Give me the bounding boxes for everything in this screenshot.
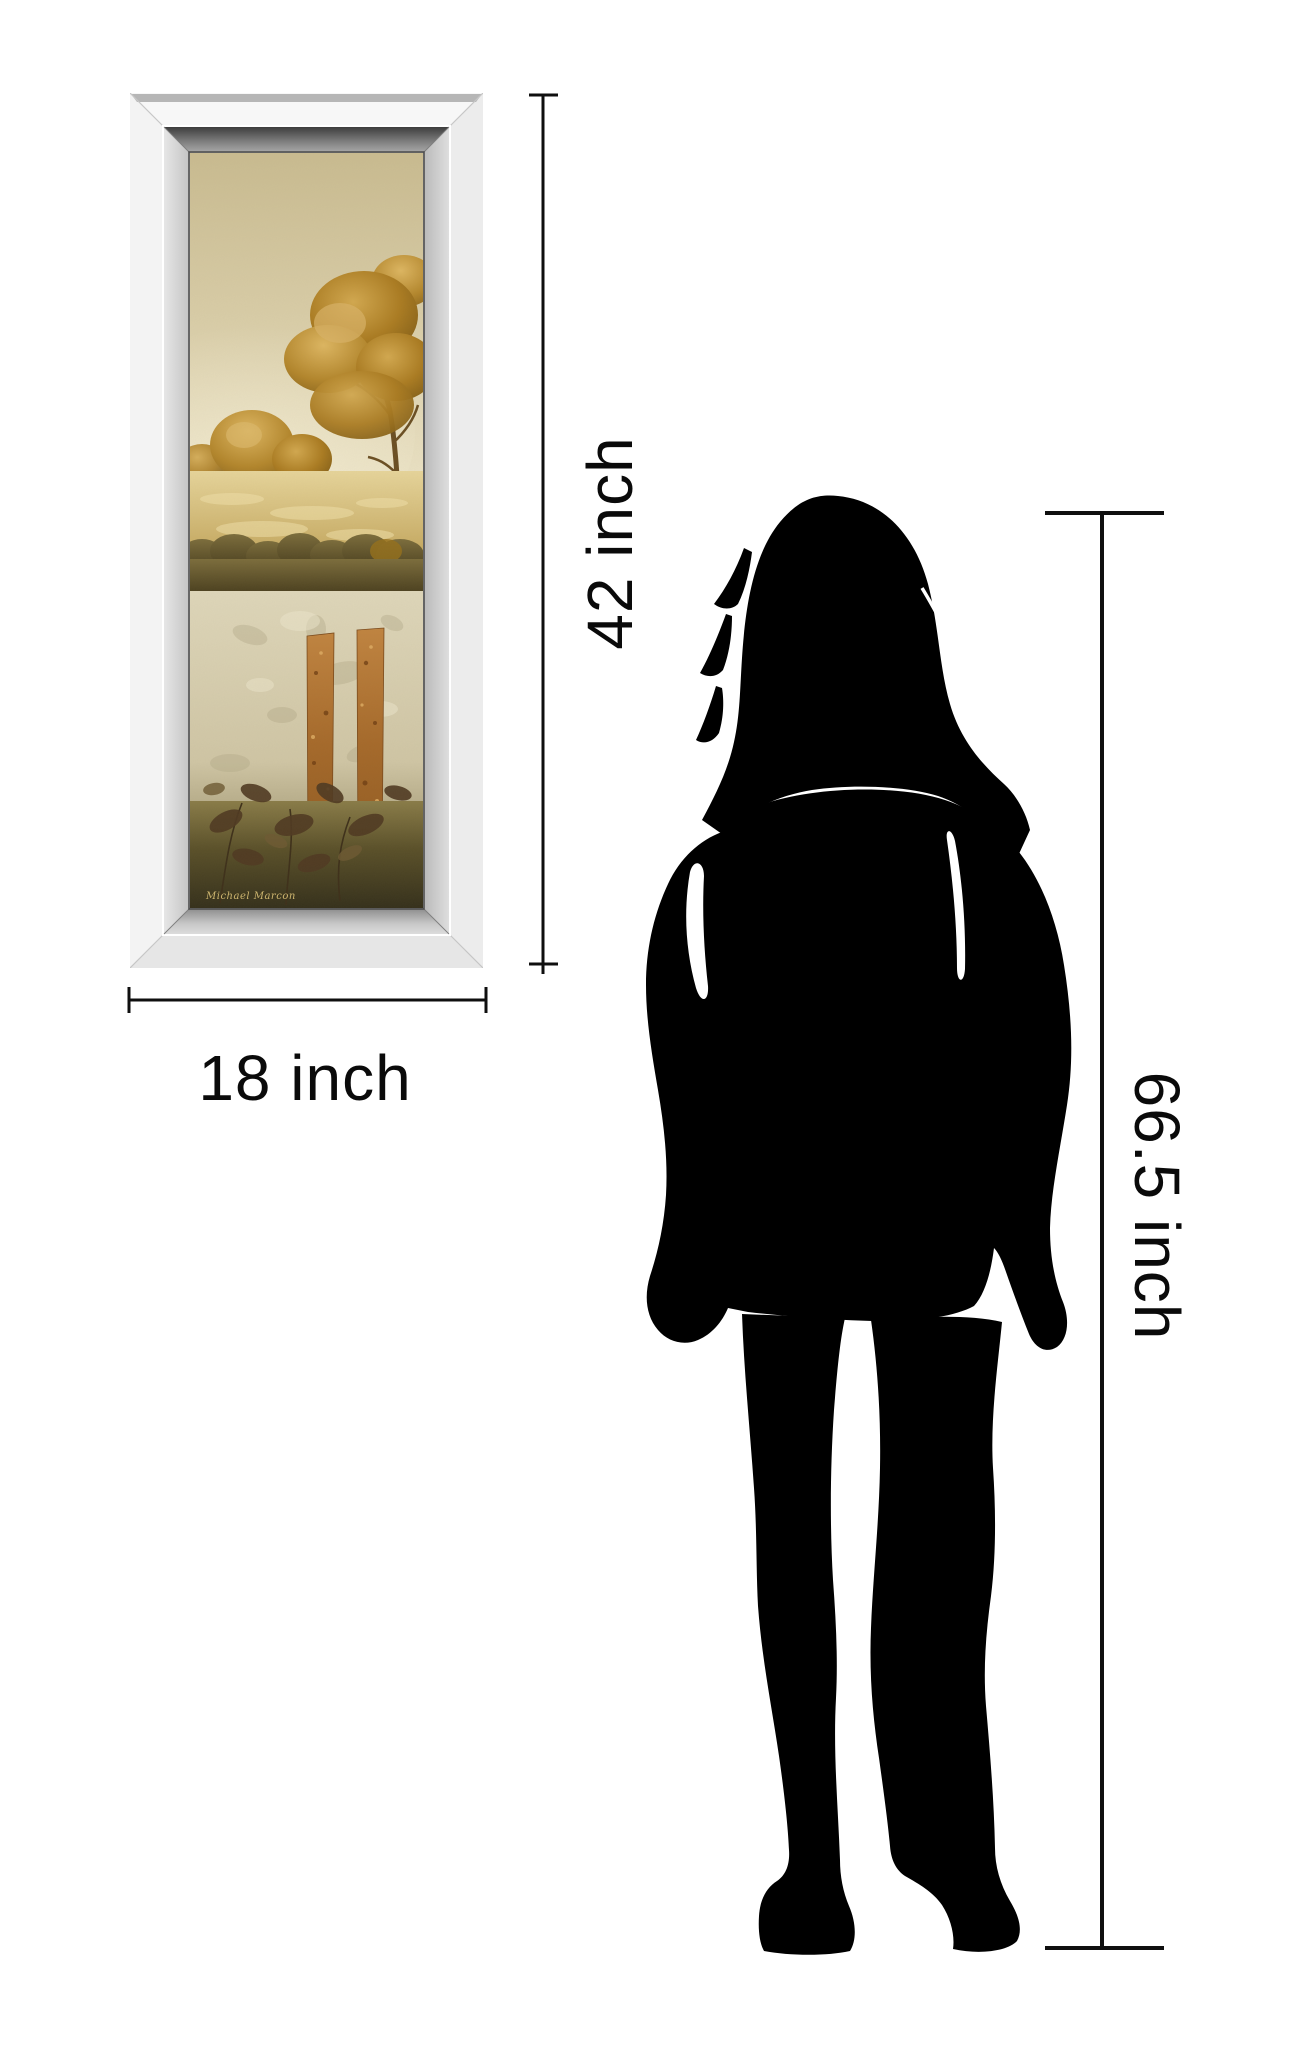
landscape-painting: Michael Marcon bbox=[190, 153, 423, 908]
artwork-height-label: 42 inch bbox=[573, 436, 647, 649]
size-comparison-diagram: Michael Marcon bbox=[0, 0, 1296, 2048]
artwork-width-dimension-line bbox=[128, 987, 487, 1013]
artwork-height-dimension-line bbox=[529, 95, 558, 974]
artist-signature: Michael Marcon bbox=[205, 891, 296, 902]
person-height-label: 66.5 inch bbox=[1120, 1072, 1194, 1341]
framed-artwork: Michael Marcon bbox=[130, 93, 483, 968]
woman-silhouette bbox=[600, 480, 1100, 1970]
artwork-width-label: 18 inch bbox=[198, 1041, 411, 1115]
